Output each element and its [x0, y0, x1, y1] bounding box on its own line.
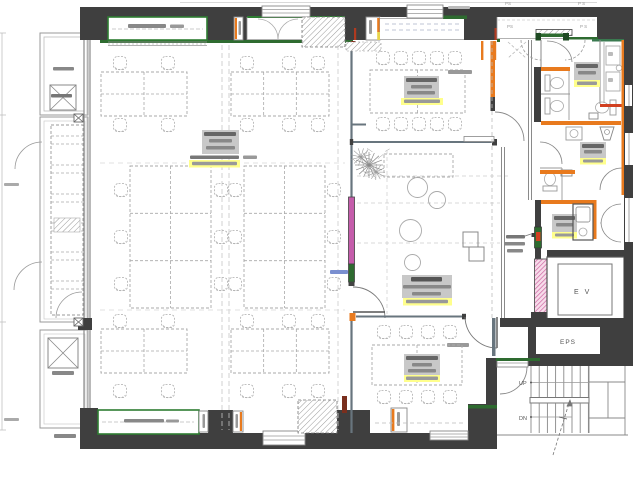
svg-text:EPS: EPS — [560, 339, 576, 346]
svg-text:DN: DN — [519, 416, 527, 422]
svg-text:PS: PS — [507, 24, 513, 29]
svg-text:P S: P S — [580, 24, 587, 29]
svg-text:PS: PS — [505, 1, 511, 6]
svg-text:UP: UP — [519, 381, 527, 387]
svg-text:P S: P S — [578, 1, 585, 6]
svg-text:E V: E V — [574, 289, 591, 296]
